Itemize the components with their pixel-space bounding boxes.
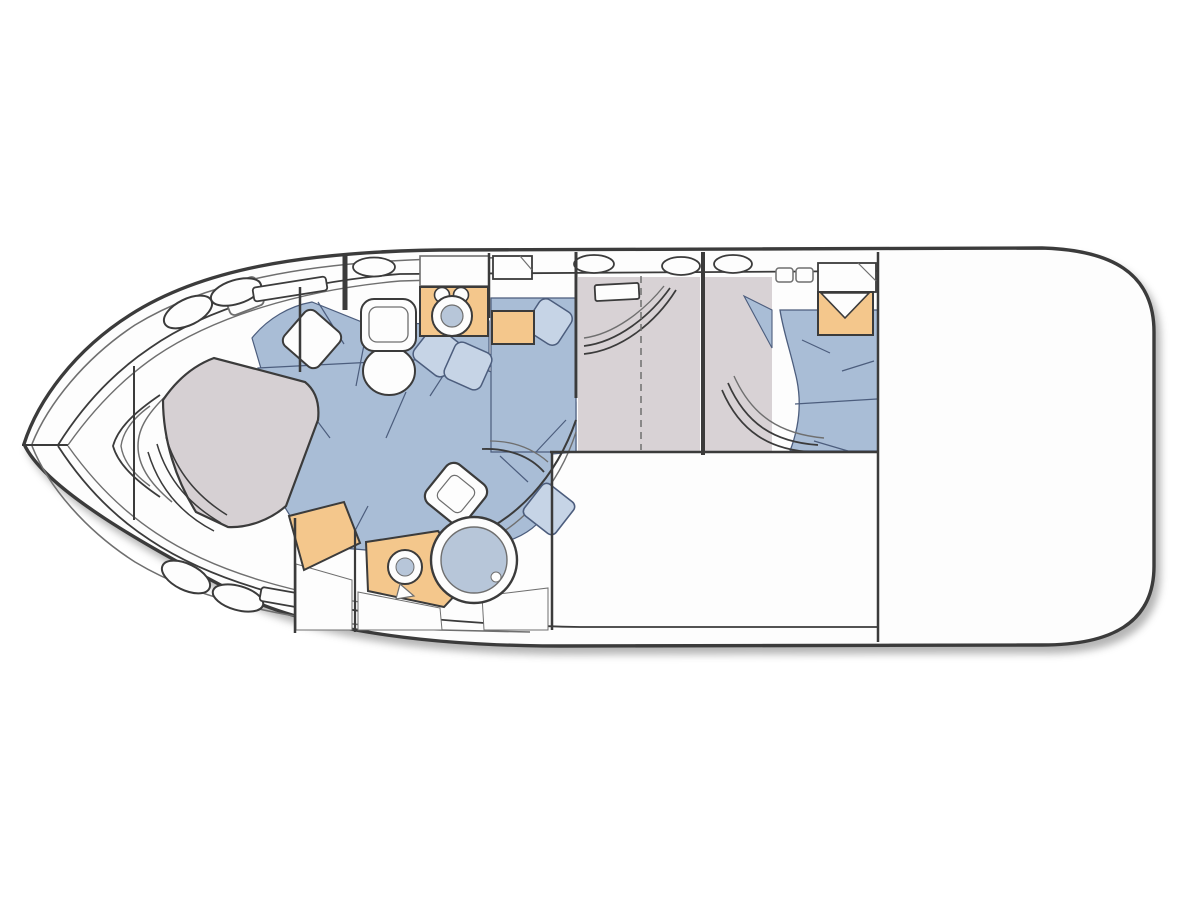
deck-hatch (796, 268, 813, 282)
vanity-upper-counter (420, 256, 489, 286)
cabinet (492, 311, 534, 344)
cabin-window (595, 283, 640, 301)
midship-cabin (578, 276, 700, 451)
sink-basin (396, 558, 414, 576)
toilet-bowl (363, 347, 415, 395)
porthole-icon (574, 255, 614, 273)
toilet-tank-lid (353, 258, 395, 277)
deck-hatch (776, 268, 793, 282)
porthole-icon (714, 255, 752, 273)
locker (818, 263, 876, 292)
boat-floorplan-page (0, 0, 1200, 900)
cabin-sole (578, 277, 700, 451)
porthole-icon (662, 257, 700, 275)
stateroom-sole (705, 277, 772, 451)
shower-floor (441, 527, 507, 593)
deck-plan-diagram (0, 0, 1200, 900)
shower-drain (491, 572, 501, 582)
sink-basin (441, 305, 463, 327)
locker (493, 256, 532, 279)
